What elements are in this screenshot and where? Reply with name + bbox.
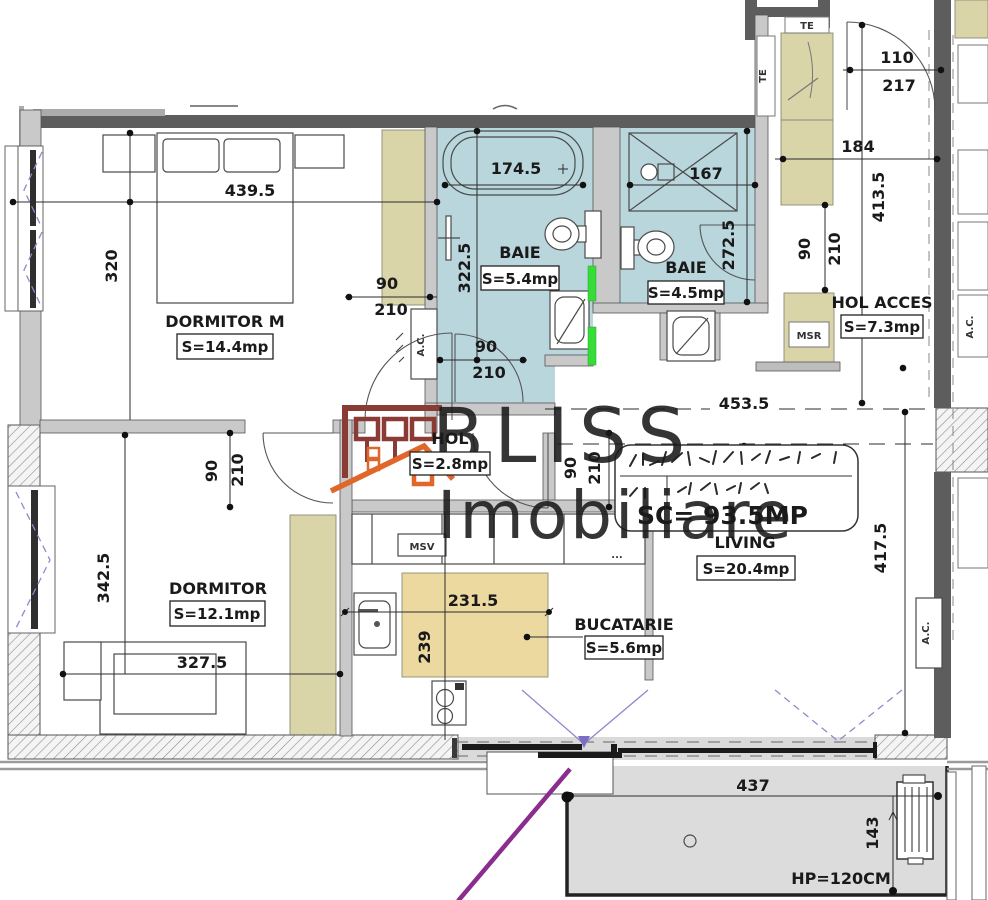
te-label-1: TE [800, 21, 814, 32]
dim-balcony-depth: 143 [863, 816, 882, 849]
ac-label-1: A.C. [416, 334, 427, 357]
room-label-dormitor: DORMITOR [169, 579, 267, 598]
parapet-label: HP=120CM [791, 869, 891, 888]
room-label-bucatarie: BUCATARIE [574, 615, 673, 634]
dim-dormitor-width: 327.5 [177, 653, 228, 672]
dim-door-h-4: 210 [585, 451, 604, 484]
area-hol: S=2.8mp [412, 455, 489, 473]
area-baie-2: S=4.5mp [648, 284, 725, 302]
dim-dormitor-depth: 342.5 [94, 553, 113, 604]
toilet-2 [621, 227, 634, 269]
dim-living-depth: 417.5 [871, 523, 890, 574]
area-dormitor-m: S=14.4mp [182, 338, 269, 356]
sliding-door-panel [462, 744, 582, 750]
ac-label-3: A.C. [965, 316, 976, 339]
area-bucatarie: S=5.6mp [586, 639, 663, 657]
neighbor-corner-unit [955, 0, 988, 38]
room-label-living: LIVING [714, 533, 775, 552]
room-label-dormitor-m: DORMITOR M [165, 312, 284, 331]
eave-strip [33, 109, 165, 116]
dim-bathtub: 174.5 [491, 159, 542, 178]
dim-dorm-m-depth: 320 [102, 249, 121, 282]
dim-kitchen-depth: 239 [415, 630, 434, 663]
toilet-1 [585, 211, 601, 258]
dim-door-h-5: 210 [228, 453, 247, 486]
te-label-2: TE [758, 69, 769, 83]
msv-label: MSV [410, 542, 435, 553]
dim-door-w-1: 90 [376, 274, 398, 293]
area-hol-acces: S=7.3mp [844, 318, 921, 336]
dim-entry-door-w: 110 [880, 48, 913, 67]
dim-door-h-2: 210 [472, 363, 505, 382]
area-dormitor: S=12.1mp [174, 605, 261, 623]
dim-living-width: 453.5 [719, 394, 770, 413]
total-area: SC= 93.5MP [637, 501, 808, 530]
sink-1 [550, 291, 589, 349]
dim-hol-acces-width: 184 [841, 137, 874, 156]
bed-dormitor-m [157, 133, 293, 303]
dim-hol-acces-depth: 413.5 [869, 172, 888, 223]
living-window-frame [618, 748, 875, 753]
dim-door-w-2: 90 [475, 337, 497, 356]
dim-baie2-depth: 272.5 [719, 220, 738, 271]
ellipsis-label: ... [611, 550, 622, 561]
area-baie-1: S=5.4mp [482, 270, 559, 288]
dim-dorm-m-width: 439.5 [225, 181, 276, 200]
dim-door-w-3: 90 [795, 238, 814, 260]
nightstand [103, 135, 155, 172]
shelf-bar [756, 362, 840, 371]
dim-door-w-4: 90 [561, 457, 580, 479]
floor-plan-svg: BLISS Imobiliare 439.5 320 DORMITOR M S=… [0, 0, 988, 900]
dim-kitchen-width: 231.5 [448, 591, 499, 610]
area-living: S=20.4mp [703, 560, 790, 578]
balcony-step [487, 752, 613, 794]
room-label-hol-acces: HOL ACCES [831, 293, 932, 312]
dim-entry-door-h: 217 [882, 76, 915, 95]
dim-door-h-3: 210 [825, 232, 844, 265]
dim-door-h-1: 210 [374, 300, 407, 319]
dim-door-w-5: 90 [202, 460, 221, 482]
window-glazing [30, 150, 36, 226]
room-label-baie-1: BAIE [499, 243, 540, 262]
wardrobe-dormitor [290, 515, 336, 735]
msr-label: MSR [797, 331, 822, 342]
radiator-green [588, 266, 596, 301]
dim-shower: 167 [689, 164, 722, 183]
ac-label-2: A.C. [921, 622, 932, 645]
room-label-hol: HOL [431, 429, 468, 448]
room-label-baie-2: BAIE [665, 258, 706, 277]
floor-plan-page: BLISS Imobiliare 439.5 320 DORMITOR M S=… [0, 0, 988, 900]
dim-balcony-width: 437 [736, 776, 769, 795]
dim-baie1-depth: 322.5 [455, 243, 474, 294]
closet-hol-acces [781, 33, 833, 205]
